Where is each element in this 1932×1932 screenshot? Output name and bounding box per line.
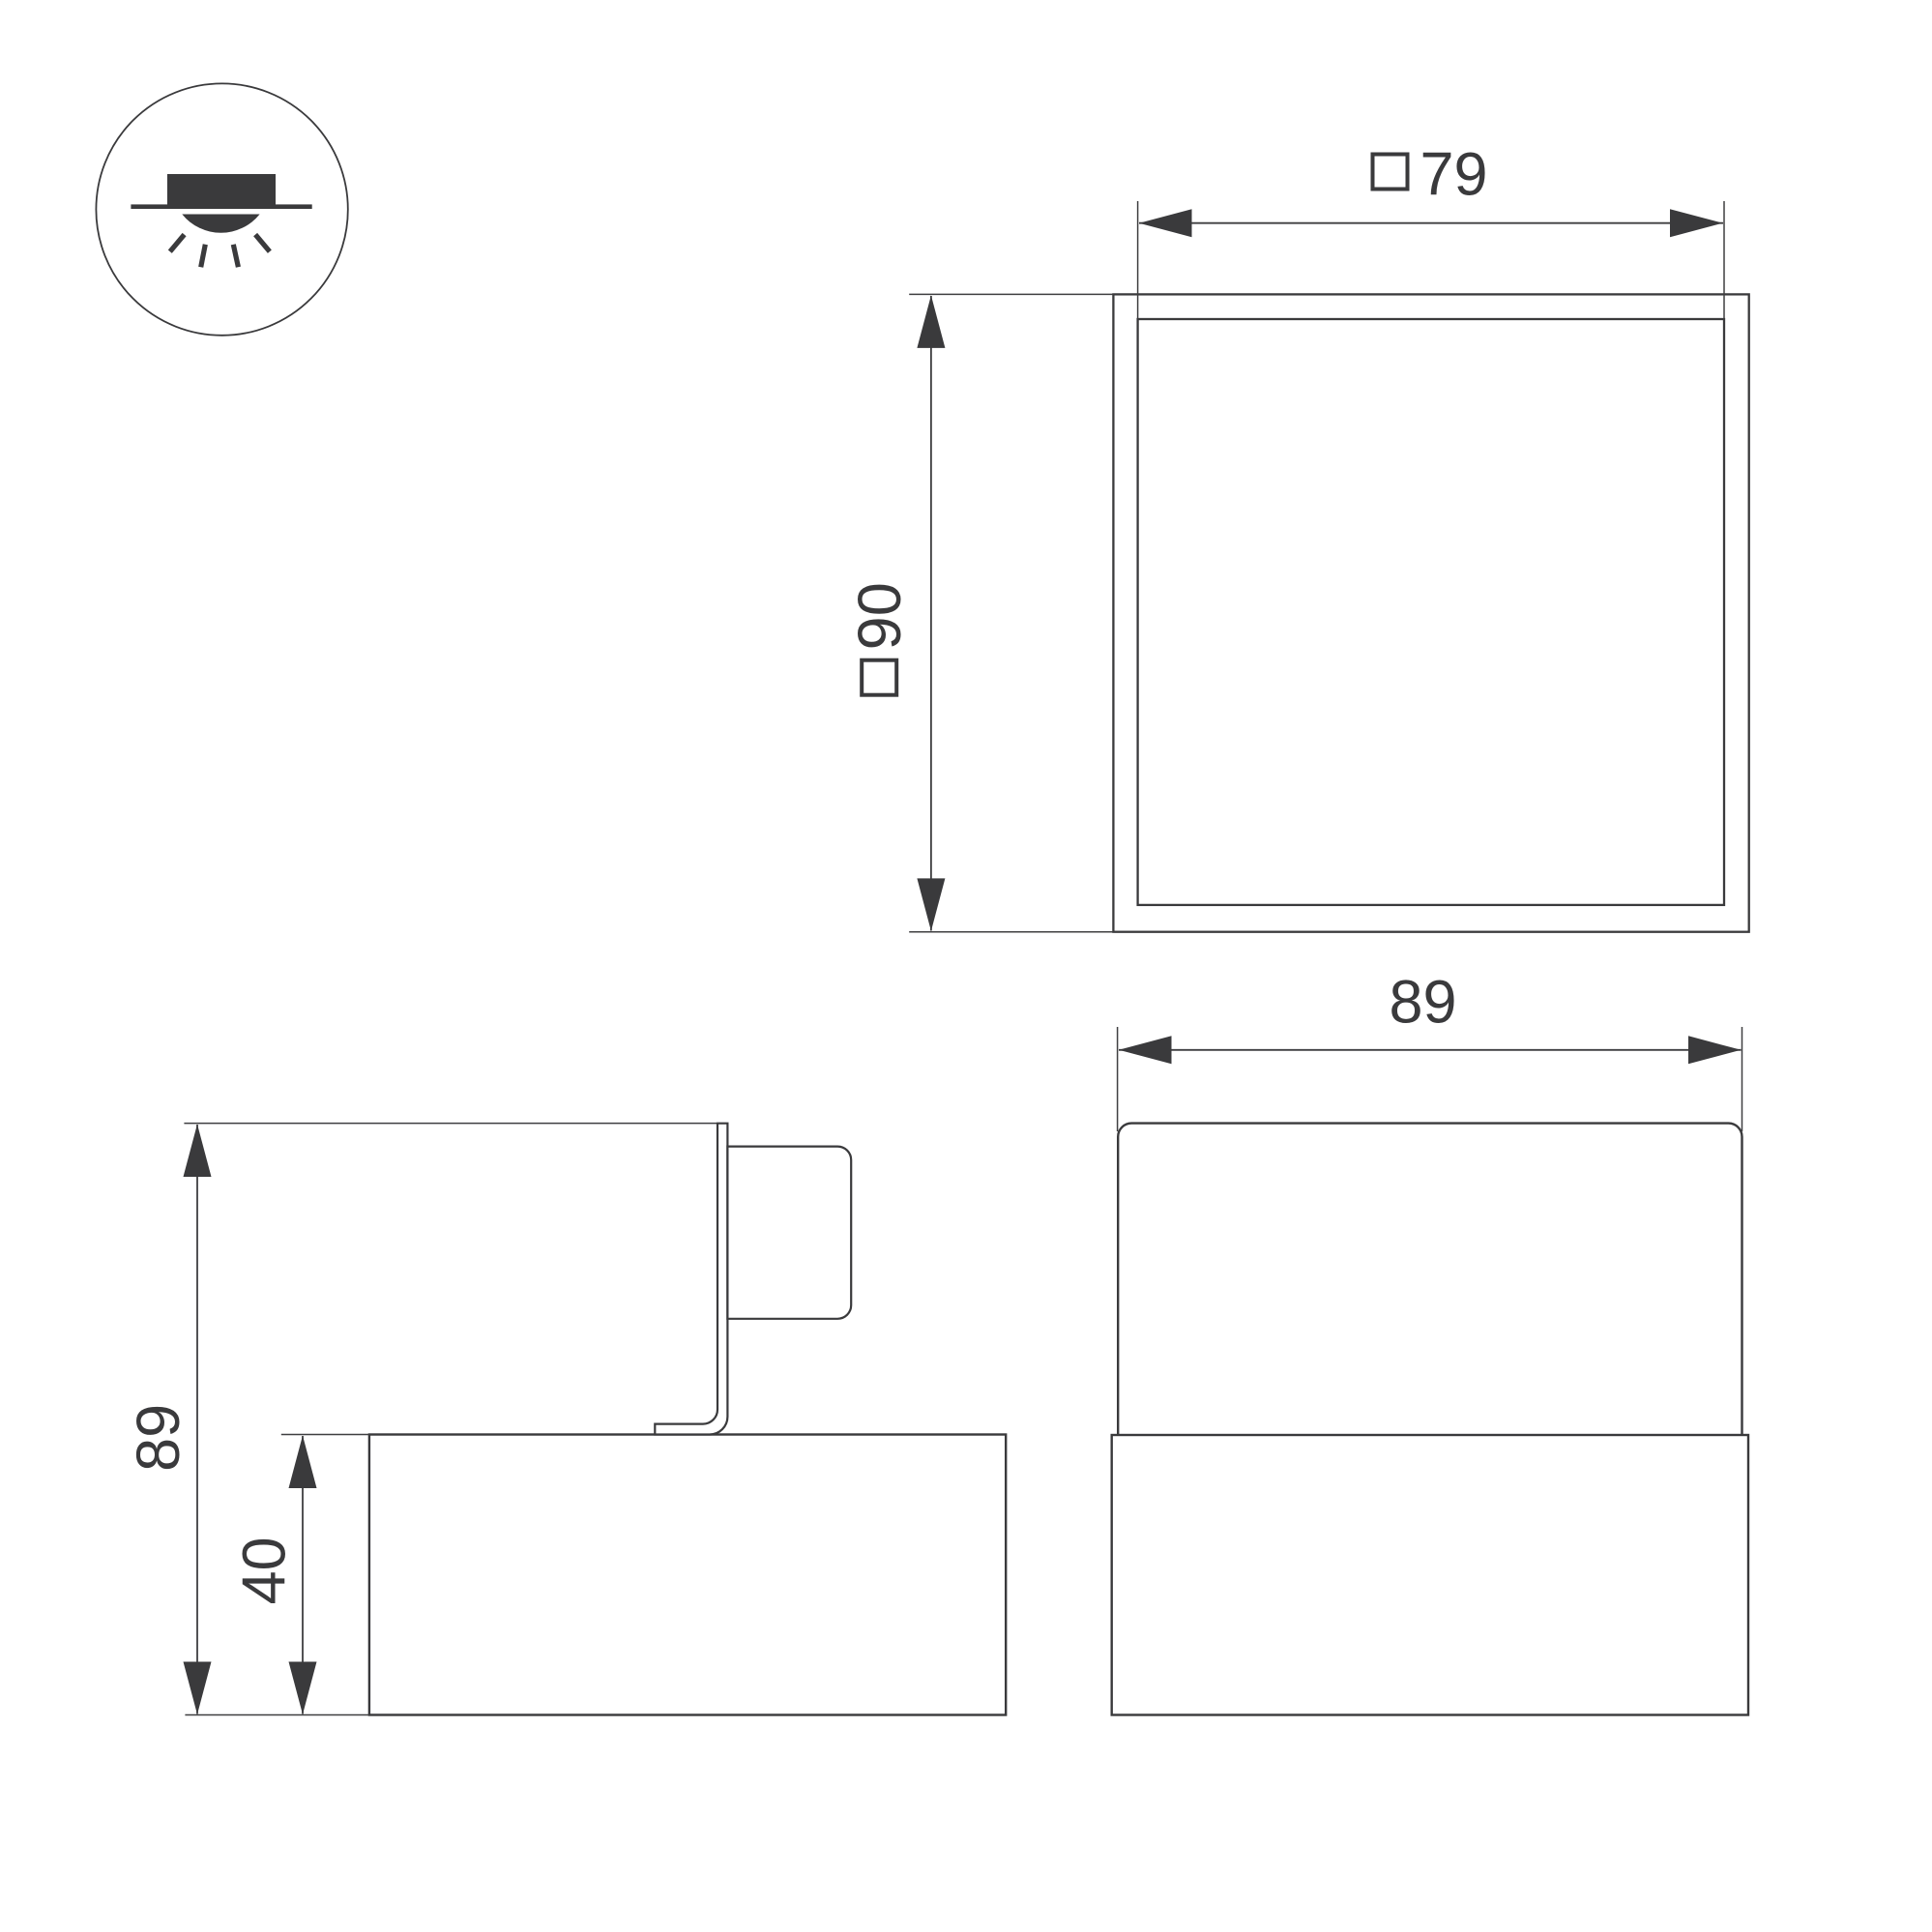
svg-text:90: 90 <box>846 582 914 650</box>
svg-text:40: 40 <box>231 1537 299 1604</box>
svg-text:79: 79 <box>1420 141 1487 209</box>
svg-text:89: 89 <box>125 1404 192 1472</box>
svg-text:89: 89 <box>1389 969 1456 1037</box>
